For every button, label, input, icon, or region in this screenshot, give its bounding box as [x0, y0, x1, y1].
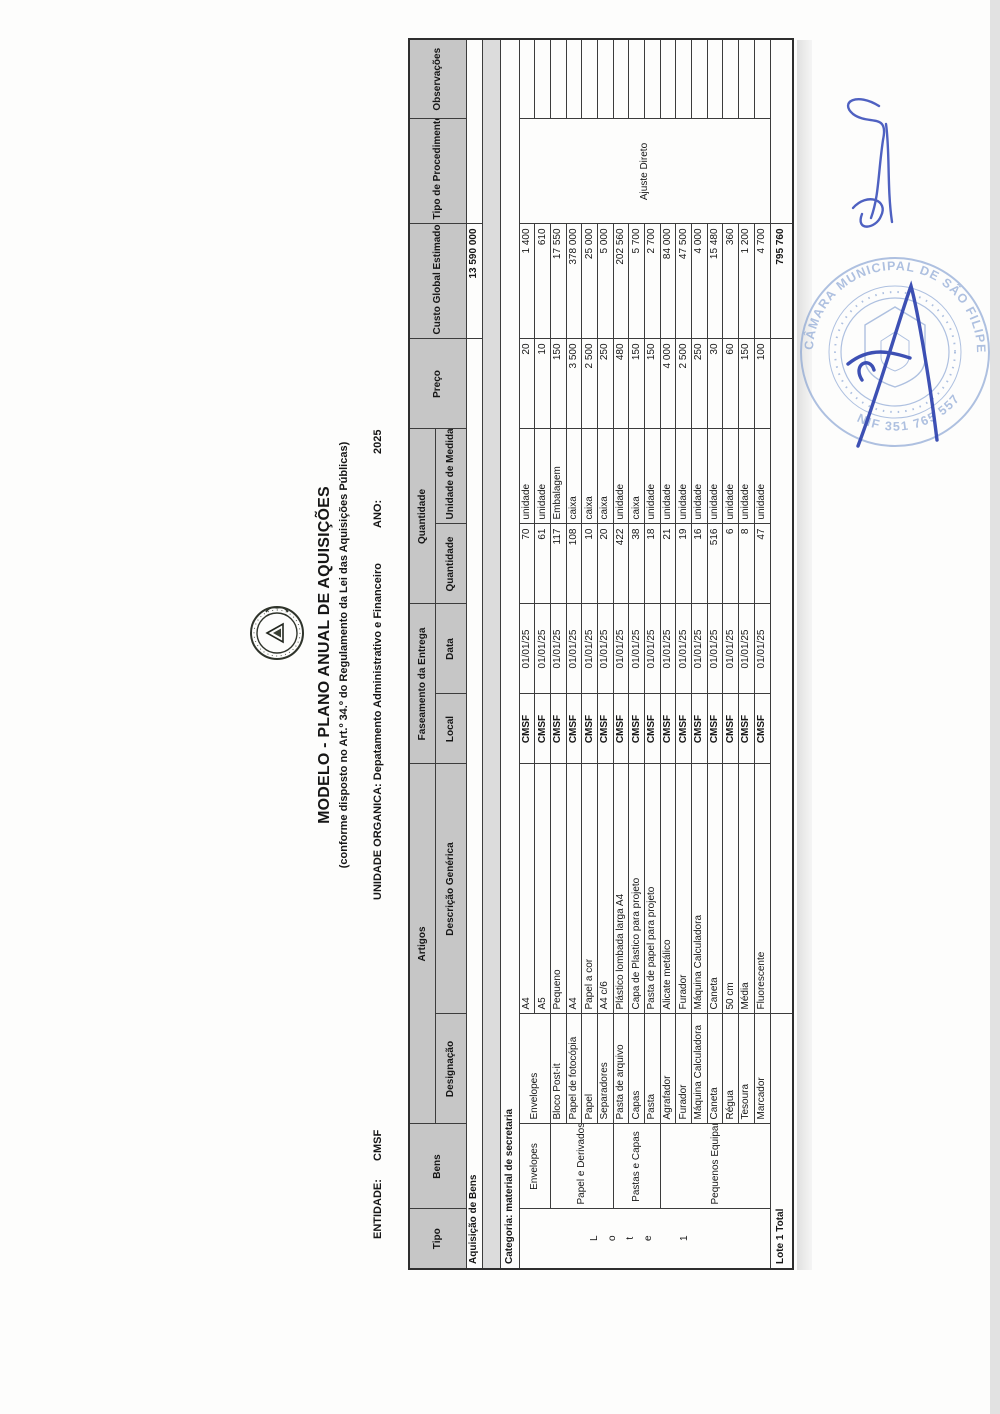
ano-label: ANO: — [372, 500, 384, 528]
header-observacoes: Observações — [409, 39, 466, 119]
cell-preco: 2 500 — [582, 339, 598, 429]
cell-data: 01/01/25 — [613, 604, 629, 694]
cell-observacoes — [629, 39, 645, 119]
cell-qtd: 18 — [645, 524, 661, 604]
cell-descricao: A4 — [519, 764, 535, 1014]
cell-unidade: unidade — [707, 429, 723, 524]
cell-preco: 100 — [754, 339, 770, 429]
cell-preco: 250 — [597, 339, 613, 429]
cell-designacao: Régua — [723, 1014, 739, 1124]
section-aquisicao-custo: 13 590 000 — [466, 224, 482, 339]
cell-custo: 15 480 — [707, 224, 723, 339]
cell-data: 01/01/25 — [739, 604, 755, 694]
cell-designacao: Capas — [629, 1014, 645, 1124]
cell-observacoes — [723, 39, 739, 119]
unidade-organica: UNIDADE ORGANICA: Depatamento Administra… — [372, 563, 384, 900]
table-row: Caneta Caneta CMSF 01/01/25 516 unidade … — [707, 39, 723, 1269]
cell-local: CMSF — [723, 694, 739, 764]
cell-descricao: Caneta — [707, 764, 723, 1014]
header-data: Data — [435, 604, 466, 694]
cell-preco: 150 — [550, 339, 566, 429]
cell-qtd: 38 — [629, 524, 645, 604]
cell-qtd: 8 — [739, 524, 755, 604]
section-row-aquisicao: Aquisição de Bens 13 590 000 — [466, 39, 482, 1269]
cell-unidade: caixa — [629, 429, 645, 524]
landscape-sheet: MODELO - PLANO ANUAL DE AQUISIÇÕES (conf… — [0, 0, 1000, 1414]
table-row: Máquina Calculadora Máquina Calculadora … — [692, 39, 708, 1269]
cell-custo: 2 700 — [645, 224, 661, 339]
table-row: Papel e Derivados Bloco Post-it Pequeno … — [550, 39, 566, 1269]
scan-page-edge — [990, 0, 1000, 1414]
table-row: Furador Furador CMSF 01/01/25 19 unidade… — [676, 39, 692, 1269]
cell-data: 01/01/25 — [645, 604, 661, 694]
cell-custo: 17 550 — [550, 224, 566, 339]
signature-initial — [838, 270, 948, 460]
cell-bens-group: Papel e Derivados — [550, 1124, 613, 1209]
cell-descricao: Furador — [676, 764, 692, 1014]
cell-descricao: Fluorescente — [754, 764, 770, 1014]
scanned-document: MODELO - PLANO ANUAL DE AQUISIÇÕES (conf… — [0, 0, 1000, 1414]
cell-data: 01/01/25 — [754, 604, 770, 694]
cell-preco: 3 500 — [566, 339, 582, 429]
cell-designacao: Agrafador — [660, 1014, 676, 1124]
cell-custo: 610 — [535, 224, 551, 339]
cell-custo: 5 700 — [629, 224, 645, 339]
cell-local: CMSF — [597, 694, 613, 764]
cell-designacao: Tesoura — [739, 1014, 755, 1124]
cell-data: 01/01/25 — [597, 604, 613, 694]
scan-shadow — [797, 40, 812, 1270]
cell-observacoes — [707, 39, 723, 119]
cell-observacoes — [676, 39, 692, 119]
cell-qtd: 108 — [566, 524, 582, 604]
header-tipo: Tipo — [409, 1209, 466, 1269]
cell-unidade: unidade — [535, 429, 551, 524]
cell-local: CMSF — [535, 694, 551, 764]
cell-unidade: unidade — [754, 429, 770, 524]
header-descricao: Descrição Genérica — [435, 764, 466, 1014]
cell-unidade: unidade — [692, 429, 708, 524]
page-title: MODELO - PLANO ANUAL DE AQUISIÇÕES — [316, 40, 334, 1270]
cell-preco: 20 — [519, 339, 535, 429]
total-custo: 795 760 — [770, 224, 793, 339]
cell-qtd: 47 — [754, 524, 770, 604]
cell-custo: 4 700 — [754, 224, 770, 339]
table-row: Papel Papel a cor CMSF 01/01/25 10 caixa… — [582, 39, 598, 1269]
cell-designacao: Marcador — [754, 1014, 770, 1124]
signature-script — [833, 90, 905, 235]
cell-data: 01/01/25 — [550, 604, 566, 694]
cell-designacao: Furador — [676, 1014, 692, 1124]
cell-descricao: Pequeno — [550, 764, 566, 1014]
cell-data: 01/01/25 — [660, 604, 676, 694]
total-label: Lote 1 Total — [770, 1014, 793, 1269]
cell-local: CMSF — [754, 694, 770, 764]
cell-designacao: Máquina Calculadora — [692, 1014, 708, 1124]
cell-data: 01/01/25 — [582, 604, 598, 694]
cell-unidade: caixa — [582, 429, 598, 524]
entidade-value: CMSF — [372, 1130, 384, 1161]
cell-preco: 150 — [629, 339, 645, 429]
cell-descricao: Capa de Plastico para projeto — [629, 764, 645, 1014]
table-row: Pasta Pasta de papel para projeto CMSF 0… — [645, 39, 661, 1269]
cell-unidade: unidade — [645, 429, 661, 524]
ano-value: 2025 — [372, 430, 384, 454]
cell-descricao: Plástico lombada larga A4 — [613, 764, 629, 1014]
cell-custo: 5 000 — [597, 224, 613, 339]
cell-descricao: A4 c/6 — [597, 764, 613, 1014]
cell-preco: 10 — [535, 339, 551, 429]
header-faseamento: Faseamento da Entrega — [409, 604, 435, 764]
cell-local: CMSF — [582, 694, 598, 764]
header-unidade: Unidade de Medida — [435, 429, 466, 524]
cell-local: CMSF — [660, 694, 676, 764]
cell-designacao: Bloco Post-it — [550, 1014, 566, 1124]
cell-local: CMSF — [629, 694, 645, 764]
cell-custo: 25 000 — [582, 224, 598, 339]
cell-qtd: 21 — [660, 524, 676, 604]
cell-bens-group: Envelopes — [519, 1124, 550, 1209]
cell-designacao: Pasta de arquivo — [613, 1014, 629, 1124]
cell-custo: 1 200 — [739, 224, 755, 339]
section-categoria-label: Categoria: material de secretaria — [500, 39, 519, 1269]
acquisitions-table: Tipo Bens Artigos Faseamento da Entrega … — [408, 38, 794, 1270]
cell-preco: 2 500 — [676, 339, 692, 429]
cell-qtd: 6 — [723, 524, 739, 604]
header-local: Local — [435, 694, 466, 764]
entidade-label: ENTIDADE: — [372, 1179, 384, 1239]
cell-unidade: unidade — [739, 429, 755, 524]
cell-data: 01/01/25 — [629, 604, 645, 694]
cell-descricao: Média — [739, 764, 755, 1014]
table-row: Tesoura Média CMSF 01/01/25 8 unidade 15… — [739, 39, 755, 1269]
cell-descricao: Máquina Calculadora — [692, 764, 708, 1014]
cell-unidade: caixa — [597, 429, 613, 524]
cell-qtd: 16 — [692, 524, 708, 604]
header-procedimento: Tipo de Procedimento (indicativo) — [409, 119, 466, 224]
cell-local: CMSF — [739, 694, 755, 764]
cell-bens-group: Pequenos Equipamentos — [660, 1124, 770, 1209]
cell-custo: 1 400 — [519, 224, 535, 339]
cell-preco: 4 000 — [660, 339, 676, 429]
cell-observacoes — [597, 39, 613, 119]
cell-observacoes — [645, 39, 661, 119]
cell-designacao: Caneta — [707, 1014, 723, 1124]
cell-qtd: 10 — [582, 524, 598, 604]
cell-unidade: unidade — [613, 429, 629, 524]
cell-unidade: unidade — [519, 429, 535, 524]
cell-qtd: 516 — [707, 524, 723, 604]
cell-custo: 202 560 — [613, 224, 629, 339]
cell-custo: 47 500 — [676, 224, 692, 339]
cell-observacoes — [519, 39, 535, 119]
cell-local: CMSF — [566, 694, 582, 764]
cell-unidade: Embalagem — [550, 429, 566, 524]
cell-local: CMSF — [550, 694, 566, 764]
cell-designacao: Pasta — [645, 1014, 661, 1124]
cell-data: 01/01/25 — [676, 604, 692, 694]
cell-descricao: Alicate metálico — [660, 764, 676, 1014]
header-custo: Custo Global Estimado — [409, 224, 466, 339]
header-artigos: Artigos — [409, 764, 435, 1124]
cell-local: CMSF — [519, 694, 535, 764]
cell-local: CMSF — [707, 694, 723, 764]
cell-data: 01/01/25 — [707, 604, 723, 694]
cell-unidade: unidade — [676, 429, 692, 524]
cell-data: 01/01/25 — [535, 604, 551, 694]
table-row: Régua 50 cm CMSF 01/01/25 6 unidade 60 3… — [723, 39, 739, 1269]
total-row: Lote 1 Total 795 760 — [770, 39, 793, 1269]
cell-unidade: unidade — [723, 429, 739, 524]
table-row: Capas Capa de Plastico para projeto CMSF… — [629, 39, 645, 1269]
section-row-categoria: Categoria: material de secretaria — [500, 39, 519, 1269]
info-line: ENTIDADE: CMSF UNIDADE ORGANICA: Depatam… — [372, 0, 388, 1414]
cell-preco: 150 — [645, 339, 661, 429]
page-subtitle: (conforme disposto no Art.º 34.º do Regu… — [338, 40, 350, 1270]
table-row: Lote 1 Envelopes Envelopes A4 CMSF 01/01… — [519, 39, 535, 1269]
cell-unidade: unidade — [660, 429, 676, 524]
cell-preco: 480 — [613, 339, 629, 429]
cell-custo: 4 000 — [692, 224, 708, 339]
table-row: Papel de fotocópia A4 CMSF 01/01/25 108 … — [566, 39, 582, 1269]
cell-custo: 378 000 — [566, 224, 582, 339]
cell-unidade: caixa — [566, 429, 582, 524]
cell-descricao: A4 — [566, 764, 582, 1014]
cell-preco: 150 — [739, 339, 755, 429]
cell-data: 01/01/25 — [519, 604, 535, 694]
header-designacao: Designação — [435, 1014, 466, 1124]
cell-preco: 250 — [692, 339, 708, 429]
table-row: Marcador Fluorescente CMSF 01/01/25 47 u… — [754, 39, 770, 1269]
cell-local: CMSF — [692, 694, 708, 764]
cell-observacoes — [582, 39, 598, 119]
cell-qtd: 19 — [676, 524, 692, 604]
table-row: Pequenos Equipamentos Agrafador Alicate … — [660, 39, 676, 1269]
cell-observacoes — [535, 39, 551, 119]
cell-data: 01/01/25 — [566, 604, 582, 694]
cell-observacoes — [613, 39, 629, 119]
cell-local: CMSF — [645, 694, 661, 764]
cell-descricao: A5 — [535, 764, 551, 1014]
cell-observacoes — [692, 39, 708, 119]
cell-custo: 360 — [723, 224, 739, 339]
cell-descricao: 50 cm — [723, 764, 739, 1014]
cell-preco: 30 — [707, 339, 723, 429]
cell-designacao: Papel de fotocópia — [566, 1014, 582, 1124]
cell-designacao: Envelopes — [519, 1014, 550, 1124]
cell-designacao: Papel — [582, 1014, 598, 1124]
cell-data: 01/01/25 — [692, 604, 708, 694]
cell-qtd: 70 — [519, 524, 535, 604]
cell-qtd: 20 — [597, 524, 613, 604]
cell-descricao: Pasta de papel para projeto — [645, 764, 661, 1014]
cell-qtd: 422 — [613, 524, 629, 604]
cell-observacoes — [739, 39, 755, 119]
cell-observacoes — [660, 39, 676, 119]
cell-local: CMSF — [613, 694, 629, 764]
lote-cell: Lote 1 — [519, 1209, 770, 1269]
cell-qtd: 61 — [535, 524, 551, 604]
cell-observacoes — [566, 39, 582, 119]
cell-local: CMSF — [676, 694, 692, 764]
cell-bens-group: Pastas e Capas — [613, 1124, 660, 1209]
municipal-crest-logo — [248, 604, 306, 662]
cell-observacoes — [754, 39, 770, 119]
cell-descricao: Papel a cor — [582, 764, 598, 1014]
cell-preco: 60 — [723, 339, 739, 429]
header-quantidade: Quantidade — [435, 524, 466, 604]
section-aquisicao-label: Aquisição de Bens — [466, 339, 482, 1269]
cell-data: 01/01/25 — [723, 604, 739, 694]
cell-observacoes — [550, 39, 566, 119]
spacer-row — [482, 39, 500, 1269]
header-bens: Bens — [409, 1124, 466, 1209]
table-row: Pastas e Capas Pasta de arquivo Plástico… — [613, 39, 629, 1269]
cell-custo: 84 000 — [660, 224, 676, 339]
cell-designacao: Separadores — [597, 1014, 613, 1124]
header-quantidade-group: Quantidade — [409, 429, 435, 604]
table-row: Separadores A4 c/6 CMSF 01/01/25 20 caix… — [597, 39, 613, 1269]
cell-procedimento: Ajuste Direto — [519, 119, 770, 224]
header-preco: Preço — [409, 339, 466, 429]
cell-qtd: 117 — [550, 524, 566, 604]
